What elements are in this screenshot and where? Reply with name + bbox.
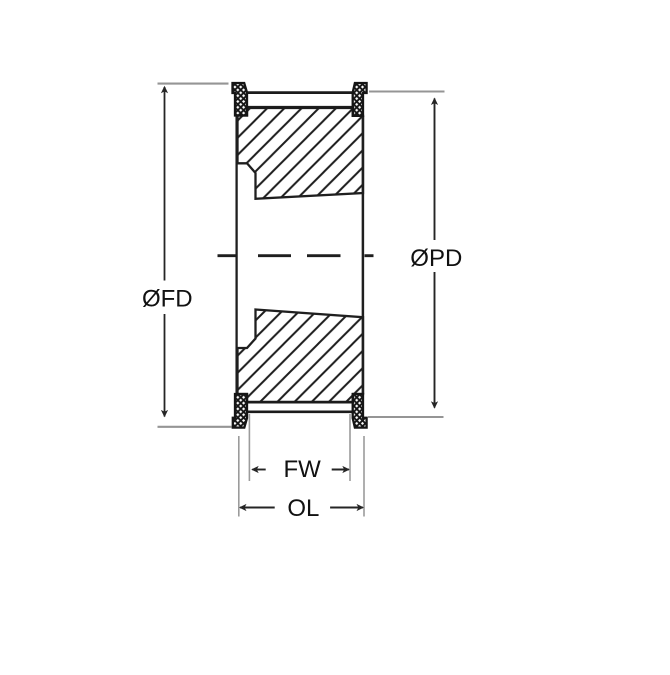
svg-text:OL: OL: [287, 495, 319, 522]
svg-text:ØFD: ØFD: [142, 286, 193, 313]
svg-text:ØPD: ØPD: [410, 245, 462, 272]
svg-text:FW: FW: [283, 456, 321, 483]
